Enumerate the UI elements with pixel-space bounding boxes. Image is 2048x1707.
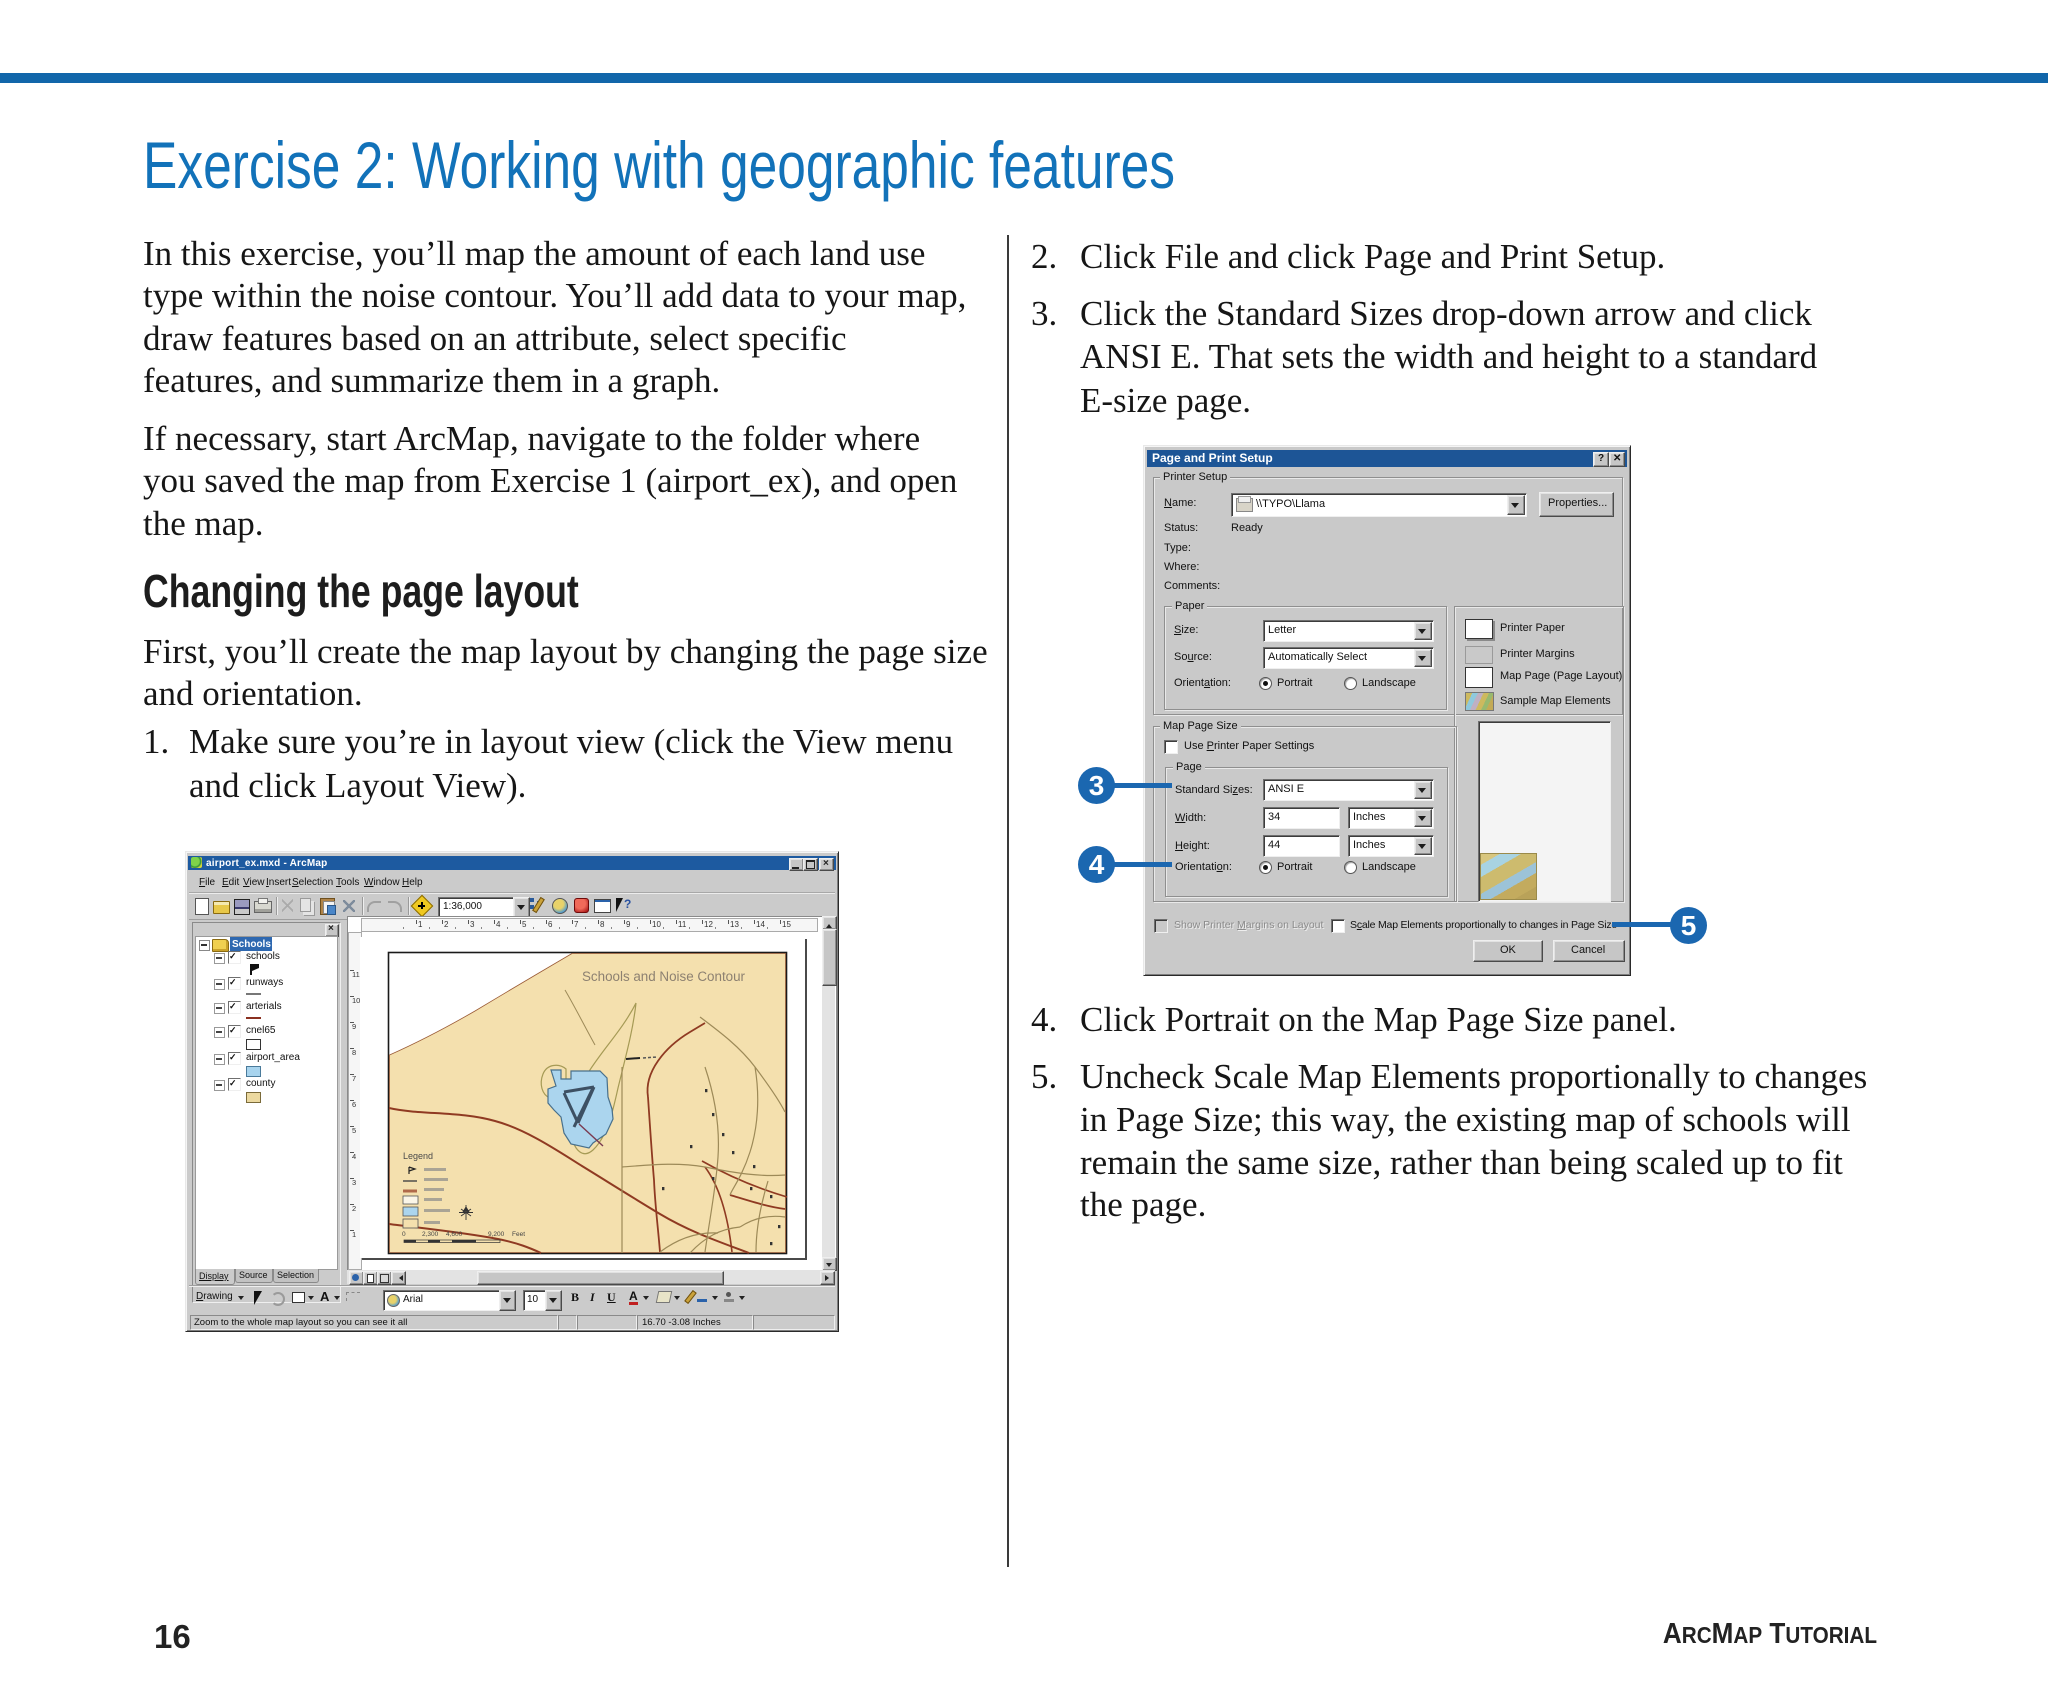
svg-text:Legend: Legend xyxy=(403,1151,433,1161)
svg-text:0: 0 xyxy=(402,1231,406,1238)
svg-text:Schools and Noise Contour: Schools and Noise Contour xyxy=(582,969,746,984)
svg-text:9,200: 9,200 xyxy=(488,1231,505,1238)
svg-text:Feet: Feet xyxy=(512,1231,525,1238)
svg-text:2,300: 2,300 xyxy=(422,1231,439,1238)
svg-text:4,600: 4,600 xyxy=(446,1231,463,1238)
